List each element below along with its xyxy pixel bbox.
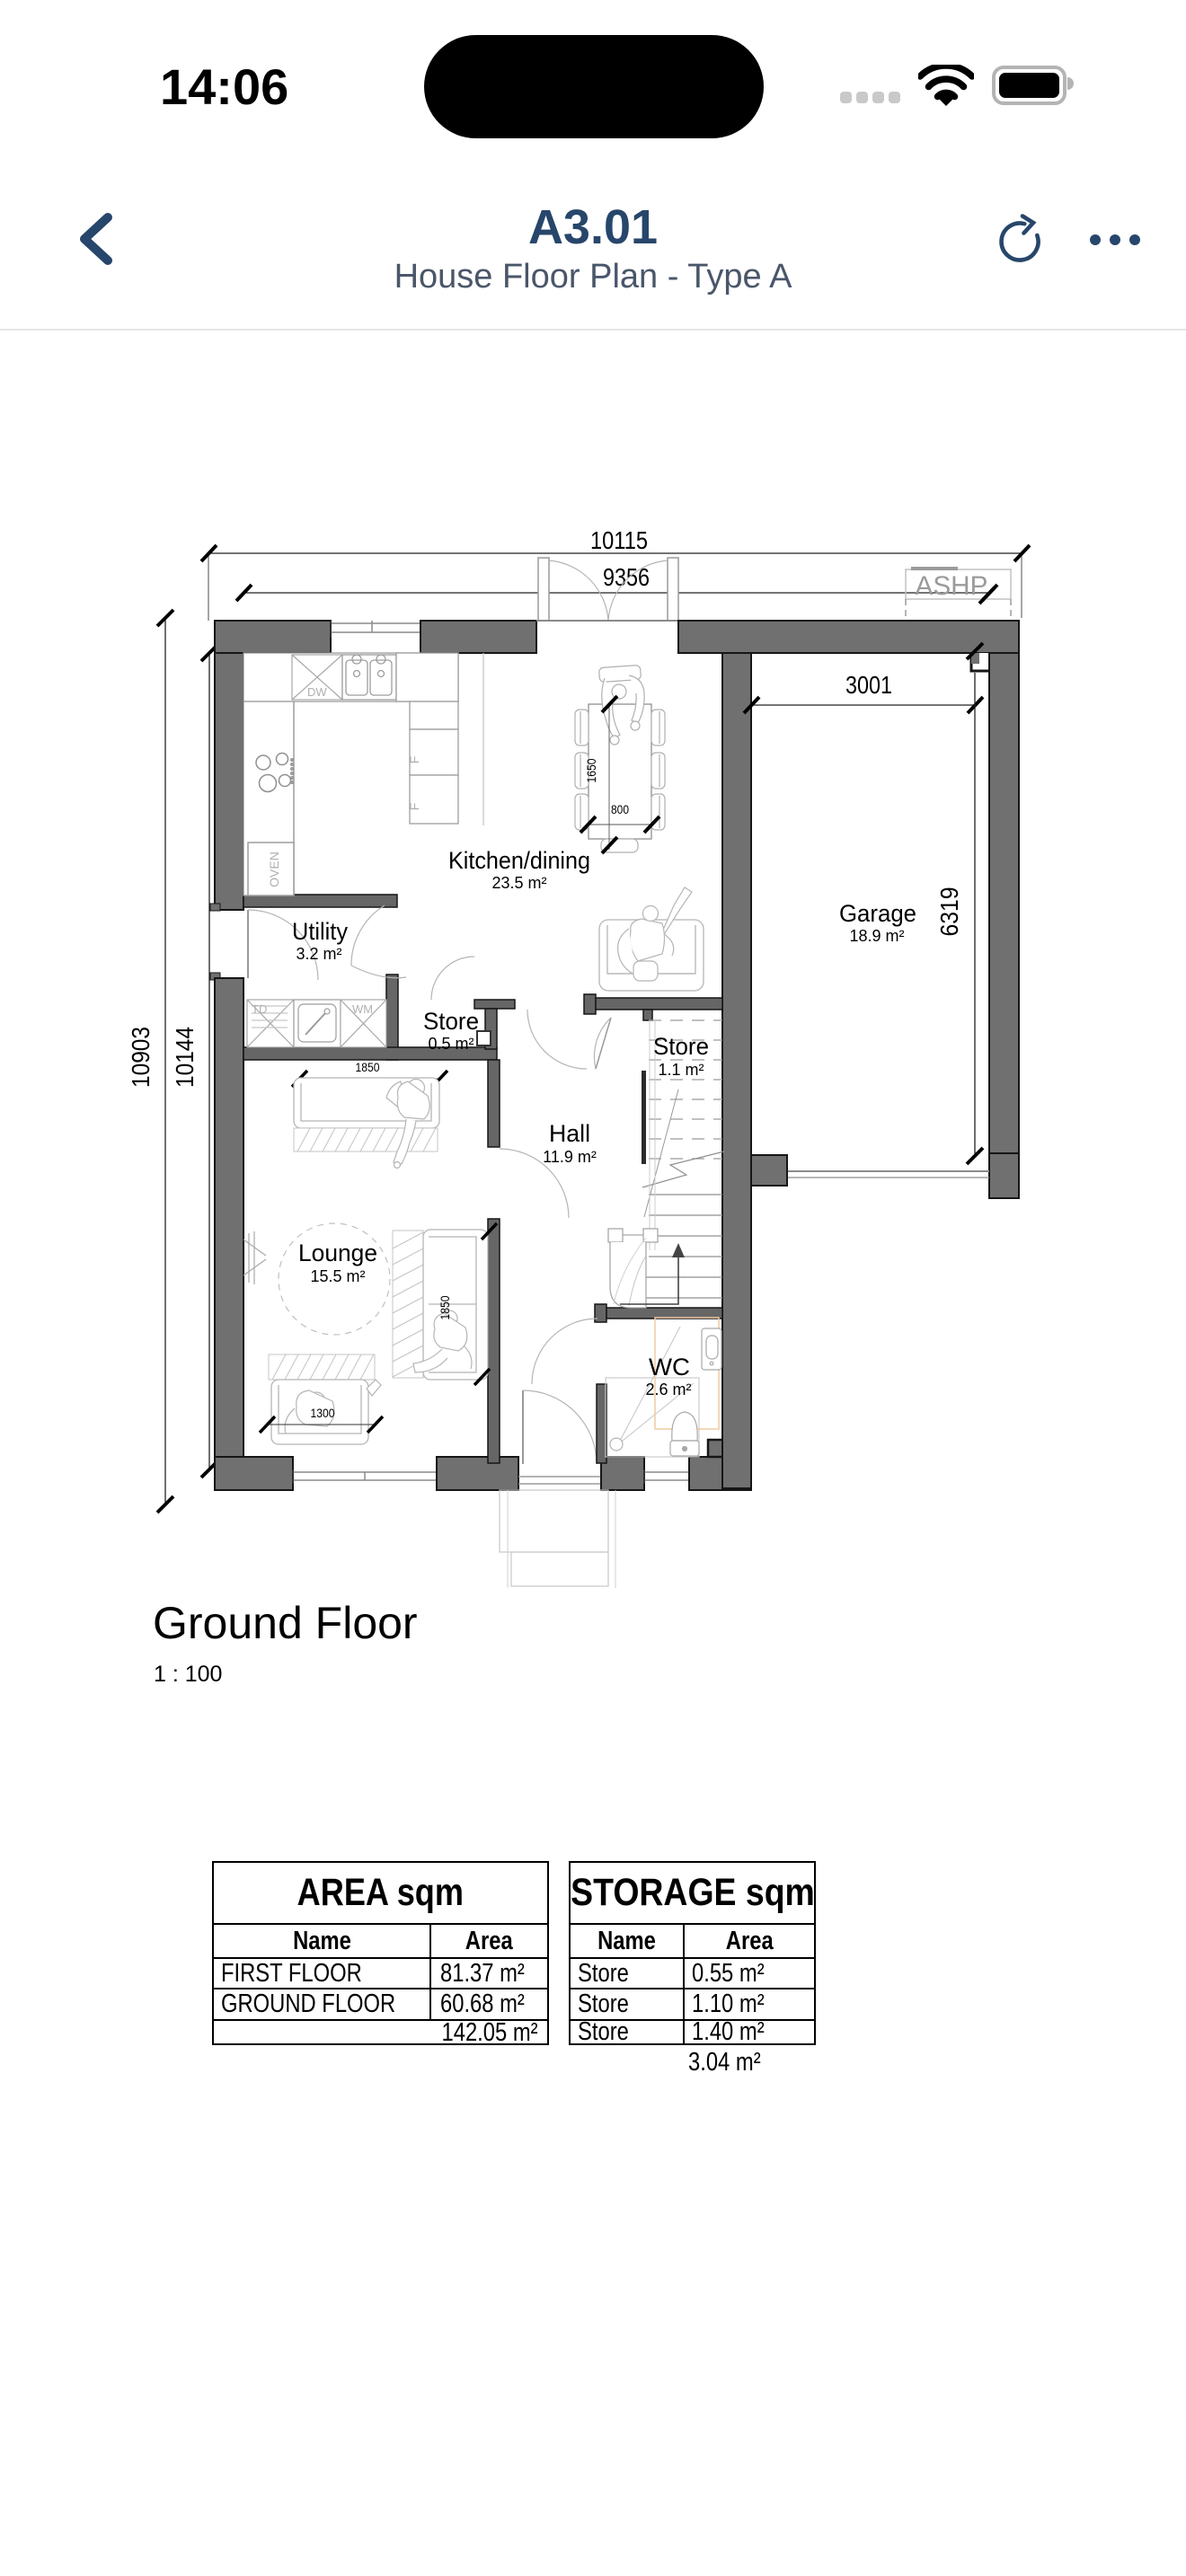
svg-text:WM: WM (352, 1002, 373, 1016)
svg-text:10903: 10903 (127, 1027, 155, 1088)
svg-text:10115: 10115 (590, 526, 648, 554)
svg-text:WC: WC (649, 1354, 690, 1381)
svg-text:1850: 1850 (438, 1295, 452, 1319)
svg-text:0.5 m²: 0.5 m² (428, 1035, 474, 1053)
svg-text:Hall: Hall (549, 1120, 590, 1147)
svg-text:DW: DW (307, 685, 327, 699)
svg-text:1850: 1850 (356, 1060, 380, 1074)
svg-text:Utility: Utility (292, 918, 348, 945)
svg-text:ASHP: ASHP (916, 571, 988, 601)
svg-text:2.6 m²: 2.6 m² (645, 1381, 691, 1398)
svg-text:1650: 1650 (584, 758, 598, 782)
svg-text:F: F (407, 803, 421, 811)
svg-text:11.9 m²: 11.9 m² (543, 1148, 597, 1166)
svg-text:OVEN: OVEN (267, 851, 281, 887)
svg-text:Store: Store (423, 1008, 479, 1035)
svg-text:1.1 m²: 1.1 m² (658, 1061, 704, 1079)
svg-text:800: 800 (611, 802, 629, 816)
svg-text:Garage: Garage (839, 900, 916, 927)
svg-text:10144: 10144 (171, 1027, 199, 1088)
svg-text:F: F (407, 756, 421, 764)
svg-text:6319: 6319 (935, 887, 963, 937)
svg-text:Lounge: Lounge (298, 1239, 377, 1266)
svg-text:TD: TD (252, 1002, 267, 1016)
svg-text:23.5 m²: 23.5 m² (491, 874, 546, 892)
svg-text:Kitchen/dining: Kitchen/dining (448, 847, 590, 874)
svg-text:3001: 3001 (845, 671, 892, 699)
svg-text:18.9 m²: 18.9 m² (849, 927, 904, 945)
svg-text:15.5 m²: 15.5 m² (310, 1267, 365, 1285)
svg-text:3.2 m²: 3.2 m² (296, 945, 341, 963)
svg-text:1300: 1300 (311, 1406, 335, 1420)
svg-text:Store: Store (653, 1033, 709, 1060)
